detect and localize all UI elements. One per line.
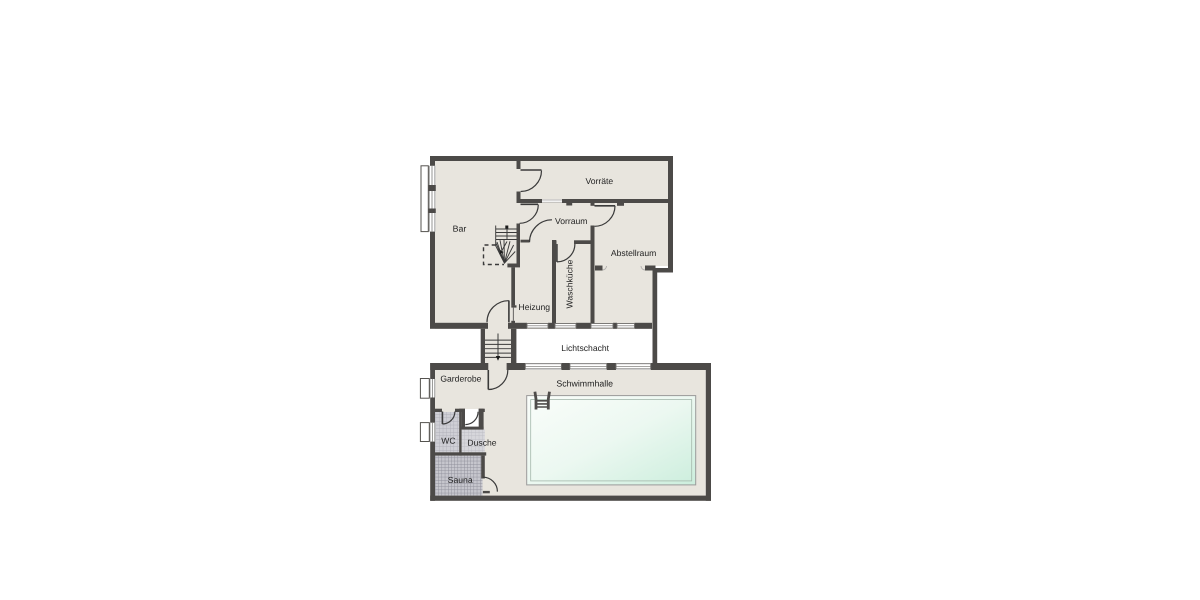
svg-text:Vorraum: Vorraum bbox=[555, 216, 587, 226]
svg-text:Waschküche: Waschküche bbox=[565, 259, 575, 308]
svg-text:Sauna: Sauna bbox=[448, 475, 473, 485]
svg-text:Bar: Bar bbox=[453, 224, 467, 234]
svg-text:Abstellraum: Abstellraum bbox=[611, 248, 656, 258]
svg-text:Lichtschacht: Lichtschacht bbox=[561, 343, 609, 353]
svg-text:Garderobe: Garderobe bbox=[440, 374, 481, 384]
svg-text:Schwimmhalle: Schwimmhalle bbox=[556, 378, 613, 388]
svg-text:Dusche: Dusche bbox=[467, 438, 496, 448]
svg-text:WC: WC bbox=[441, 436, 455, 446]
svg-text:Heizung: Heizung bbox=[519, 302, 551, 312]
svg-text:Vorräte: Vorräte bbox=[585, 176, 613, 186]
